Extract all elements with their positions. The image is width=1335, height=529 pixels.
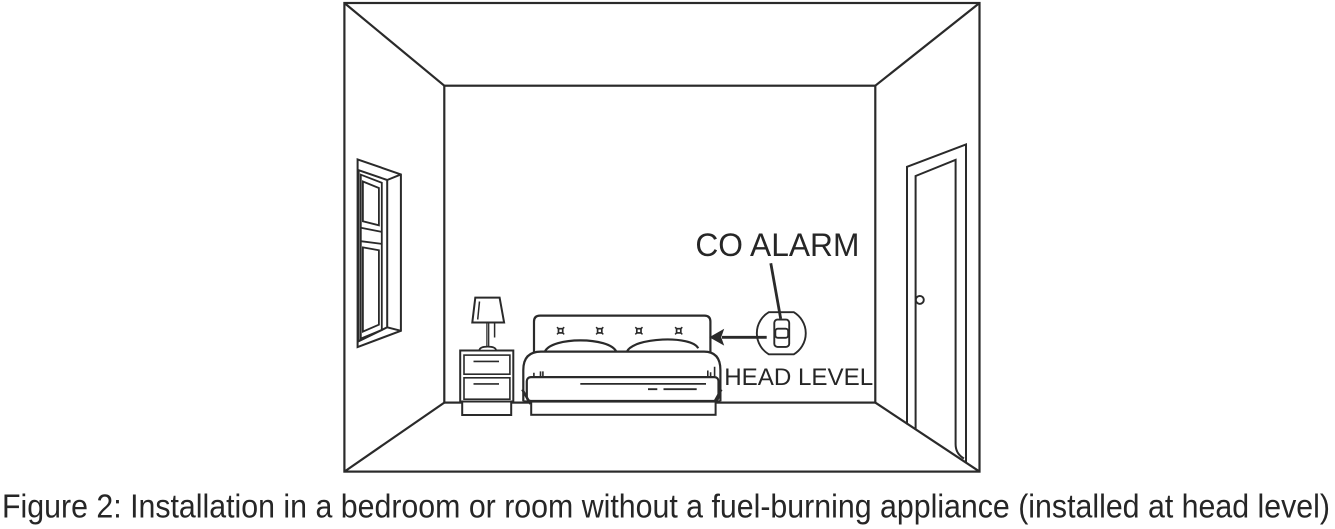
svg-text:HEAD LEVEL: HEAD LEVEL — [724, 364, 873, 391]
svg-text:CO ALARM: CO ALARM — [695, 227, 859, 263]
svg-text:Figure 2: Installation in a be: Figure 2: Installation in a bedroom or r… — [2, 488, 1330, 525]
